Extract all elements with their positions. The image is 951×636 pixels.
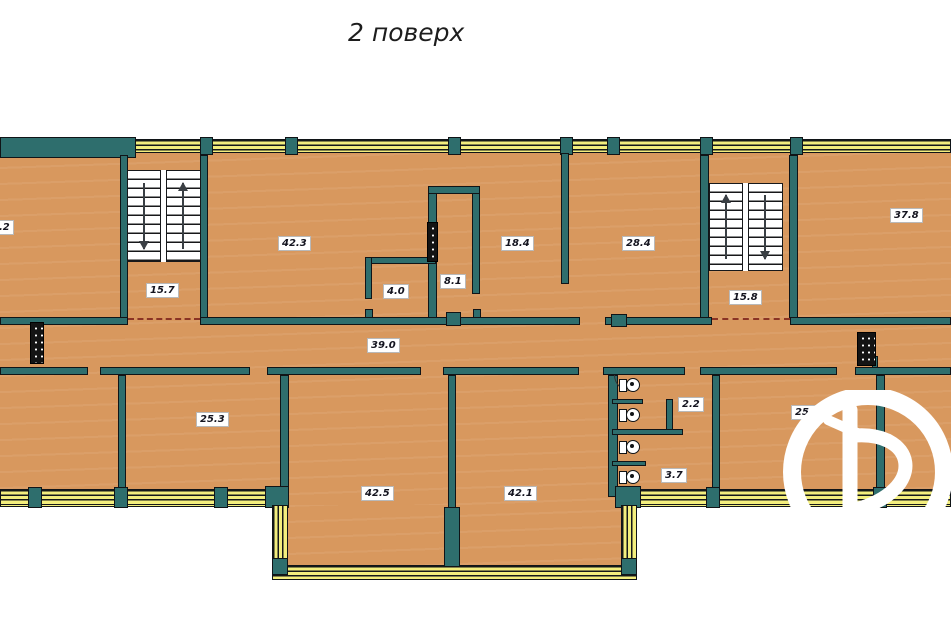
window-band-bottom-left bbox=[0, 489, 281, 507]
corridor-south-wall bbox=[267, 367, 421, 375]
room-area-label: 3.7 bbox=[661, 468, 687, 483]
interior-wall bbox=[280, 375, 289, 491]
stairwell-area-label: 15.7 bbox=[146, 283, 179, 298]
wall-pier bbox=[607, 137, 620, 155]
wc-partition bbox=[612, 429, 683, 435]
stairs bbox=[709, 183, 783, 271]
wall-pier bbox=[706, 487, 720, 508]
interior-wall bbox=[365, 257, 436, 264]
wall-stub bbox=[365, 309, 373, 318]
wall-pier bbox=[448, 137, 461, 155]
room-area-label: 1.2 bbox=[0, 220, 14, 235]
vent-shaft bbox=[30, 322, 44, 364]
corridor-north-wall bbox=[0, 317, 128, 325]
corridor-north-wall bbox=[790, 317, 951, 325]
interior-wall bbox=[472, 186, 480, 294]
stairwell2-left-wall bbox=[700, 155, 709, 319]
stairwell-right-wall bbox=[200, 155, 208, 319]
stairwell2-right-wall bbox=[789, 155, 798, 319]
toilet-icon bbox=[619, 440, 640, 454]
corridor-south-wall bbox=[855, 367, 951, 375]
room-area-label: 28.4 bbox=[622, 236, 655, 251]
stair-opening-dashed bbox=[712, 318, 790, 320]
room-area-label: 8.1 bbox=[440, 274, 466, 289]
room-area-label: 42.3 bbox=[278, 236, 311, 251]
wc-right-wall bbox=[712, 375, 720, 497]
interior-wall bbox=[365, 257, 372, 299]
interior-wall bbox=[428, 186, 480, 194]
toilet-icon bbox=[619, 378, 640, 392]
room-area-label: 4.0 bbox=[383, 284, 409, 299]
corridor-south-wall bbox=[100, 367, 250, 375]
toilet-icon bbox=[619, 470, 640, 484]
wall-pier bbox=[114, 487, 128, 508]
room-area-label: 25.3 bbox=[196, 412, 229, 427]
exterior-wall-top-left bbox=[0, 137, 136, 158]
vent-shaft bbox=[857, 332, 876, 366]
wall-pier bbox=[621, 558, 637, 575]
room-area-label: 42.5 bbox=[361, 486, 394, 501]
toilet-icon bbox=[619, 408, 640, 422]
wall-pier bbox=[700, 137, 713, 155]
arrow-down-icon bbox=[143, 183, 145, 249]
corridor-north-wall bbox=[200, 317, 580, 325]
wall-pier bbox=[272, 558, 288, 575]
wc-left-wall bbox=[608, 375, 618, 497]
wall-pier bbox=[214, 487, 228, 508]
room-area-label: 2.2 bbox=[678, 397, 704, 412]
arrow-up-icon bbox=[725, 195, 727, 259]
room-area-label: 42.1 bbox=[504, 486, 537, 501]
corridor-south-wall bbox=[700, 367, 837, 375]
stairwell-area-label: 15.8 bbox=[729, 290, 762, 305]
arrow-up-icon bbox=[182, 183, 184, 249]
corridor-south-wall bbox=[603, 367, 685, 375]
bay-divider-wall bbox=[444, 507, 460, 567]
stair-opening-dashed bbox=[128, 318, 200, 320]
stairs bbox=[127, 170, 201, 262]
bay-window-bottom bbox=[272, 565, 637, 580]
window-band-top bbox=[135, 139, 951, 153]
wall-stub bbox=[473, 309, 481, 318]
corridor-south-wall bbox=[0, 367, 88, 375]
interior-wall bbox=[118, 375, 126, 491]
interior-wall bbox=[561, 153, 569, 284]
wc-partition bbox=[612, 399, 643, 404]
corridor-area-label: 39.0 bbox=[367, 338, 400, 353]
wall-pier bbox=[790, 137, 803, 155]
wc-partition bbox=[612, 461, 646, 466]
corridor-south-wall bbox=[443, 367, 579, 375]
floor-plan-page: 2 поверх bbox=[0, 0, 951, 636]
wall-pier bbox=[285, 137, 298, 155]
floor-plan: 1.2 15.7 42.3 4.0 8.1 18.4 28.4 15.8 37.… bbox=[0, 0, 951, 636]
wall-pier bbox=[446, 312, 461, 326]
room-area-label: 18.4 bbox=[501, 236, 534, 251]
wall-pier bbox=[200, 137, 213, 155]
wall-pier bbox=[28, 487, 42, 508]
vent-shaft bbox=[427, 222, 438, 262]
watermark-logo bbox=[768, 390, 951, 560]
room-area-label: 37.8 bbox=[890, 208, 923, 223]
arrow-down-icon bbox=[764, 195, 766, 259]
wall-pier bbox=[611, 314, 627, 327]
